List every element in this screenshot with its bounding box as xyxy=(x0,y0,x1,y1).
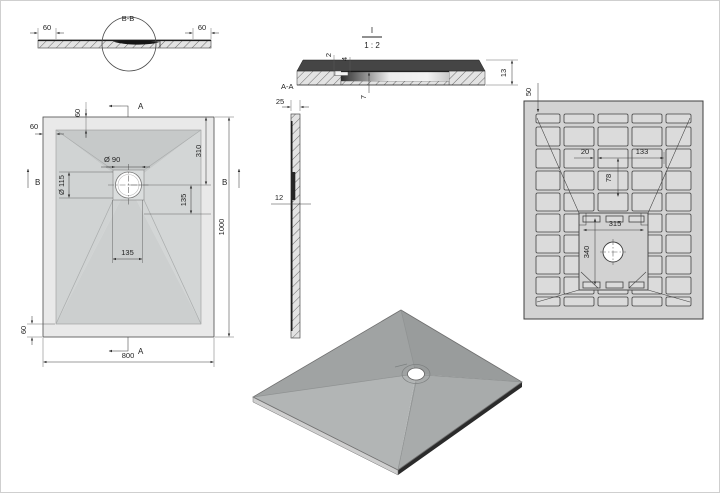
rib-pocket xyxy=(666,256,691,274)
dim-60-right: 60 xyxy=(198,23,206,32)
bottom-rib-view: 50 20 133 78 315 340 xyxy=(524,83,703,319)
drain-recess-section xyxy=(341,71,449,81)
plan-view: A 60 60 Ø 90 Ø 115 310 xyxy=(19,102,239,367)
dim-flange-diameter: Ø 115 xyxy=(57,175,66,195)
dim-drain-right: 135 xyxy=(179,194,188,207)
dim-edge-50: 50 xyxy=(524,88,533,96)
dim-width: 800 xyxy=(122,351,135,360)
rib-pocket xyxy=(598,149,628,168)
dim-thickness: 13 xyxy=(499,69,508,77)
dim-left-margin: 60 xyxy=(30,122,38,131)
dim-center-width: 315 xyxy=(609,219,622,228)
rib-pocket xyxy=(536,149,560,168)
rib-pocket xyxy=(598,193,628,211)
rib-pocket xyxy=(666,277,691,294)
rib-pocket xyxy=(564,149,594,168)
dim-bottom-margin: 60 xyxy=(19,326,28,334)
rib-pocket xyxy=(632,297,662,306)
rib-pocket xyxy=(564,114,594,123)
rib-pocket xyxy=(536,214,560,232)
detail-scale: 1 : 2 xyxy=(364,41,380,50)
dim-height: 1000 xyxy=(217,219,226,236)
dim-side-top: 25 xyxy=(276,97,284,106)
section-aa-label: A-A xyxy=(281,82,294,91)
strip-dimensions: 60 60 xyxy=(30,23,219,39)
rib-pocket xyxy=(632,114,662,123)
section-marker-a-top: A xyxy=(138,102,144,111)
rib-pocket xyxy=(598,114,628,123)
side-section-view: 25 12 xyxy=(271,97,311,338)
rib-pocket xyxy=(564,193,594,211)
rib-pocket xyxy=(564,297,594,306)
detail-title: I xyxy=(371,26,373,35)
section-marker-a-bottom: A xyxy=(138,347,144,356)
drawing-canvas: B-B 60 60 A xyxy=(1,1,719,492)
dim-rib-20: 20 xyxy=(581,147,589,156)
rib-pocket xyxy=(598,297,628,306)
rib-pocket xyxy=(666,127,691,146)
dim-center-height: 340 xyxy=(582,246,591,259)
section-bb-label: B-B xyxy=(122,14,135,23)
dim-60-left: 60 xyxy=(43,23,51,32)
dim-top-margin: 60 xyxy=(73,109,82,117)
rib-pocket xyxy=(666,214,691,232)
top-surface-band xyxy=(297,60,485,71)
technical-drawing-sheet: B-B 60 60 A xyxy=(0,0,720,493)
dim-vert-78: 78 xyxy=(604,174,613,182)
rib-pocket xyxy=(666,114,691,123)
detail-section-aa-view: I 1 : 2 2 4 7 13 A-A xyxy=(281,26,518,99)
rib-pocket xyxy=(536,277,560,294)
section-marker-b-right: B xyxy=(222,178,227,187)
rib-pocket xyxy=(632,127,662,146)
side-drain-recess xyxy=(291,172,295,200)
iso-drain-circle xyxy=(408,368,425,380)
dim-recess: 7 xyxy=(359,95,368,99)
rib-pocket xyxy=(632,171,662,190)
rib-pocket xyxy=(536,193,560,211)
dim-step: 4 xyxy=(340,57,349,61)
rib-pocket xyxy=(536,235,560,253)
dim-skin: 2 xyxy=(324,53,333,57)
section-bb-strip-view: B-B 60 60 xyxy=(30,14,219,71)
rib-pocket xyxy=(666,171,691,190)
rib-pocket xyxy=(536,171,560,190)
rib-pocket xyxy=(632,193,662,211)
rib-pocket xyxy=(564,127,594,146)
rib-pocket xyxy=(598,171,628,190)
dim-drain-bottom: 135 xyxy=(121,248,134,257)
rib-pocket xyxy=(598,127,628,146)
rib-pocket xyxy=(666,193,691,211)
section-marker-b-left: B xyxy=(35,178,40,187)
rib-pocket xyxy=(666,235,691,253)
rib-pocket xyxy=(564,171,594,190)
dim-drain-diameter: Ø 90 xyxy=(104,155,120,164)
rib-pocket xyxy=(536,114,560,123)
rib-pocket xyxy=(666,149,691,168)
dim-side-mid: 12 xyxy=(275,193,283,202)
dim-drain-from-top: 310 xyxy=(194,145,203,158)
rib-pocket xyxy=(536,256,560,274)
dim-pocket-133: 133 xyxy=(636,147,649,156)
